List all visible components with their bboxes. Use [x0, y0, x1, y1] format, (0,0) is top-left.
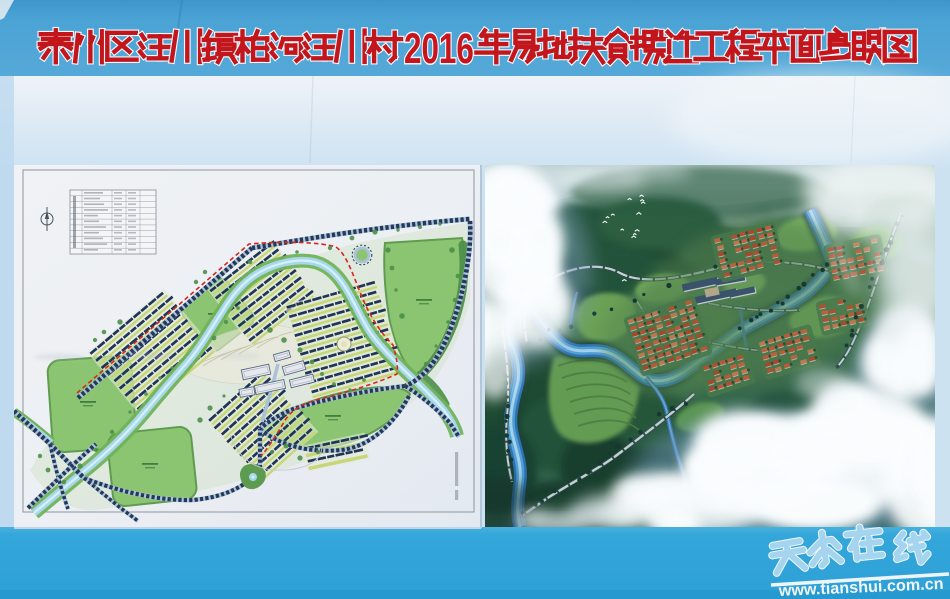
svg-text:2016: 2016	[404, 24, 474, 72]
